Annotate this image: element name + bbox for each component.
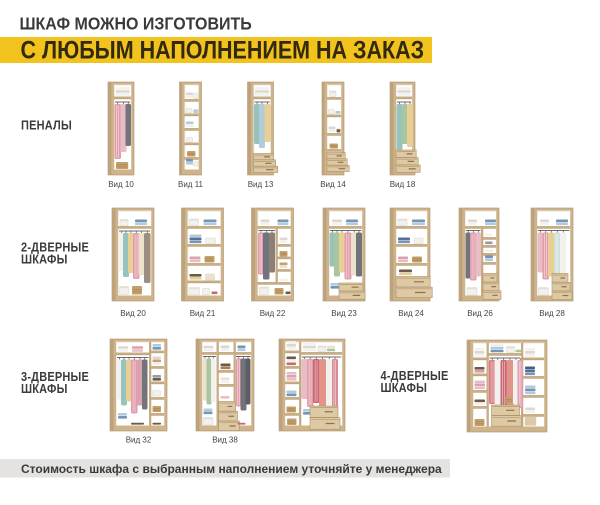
svg-text:Вид 11: Вид 11	[178, 180, 204, 189]
svg-text:Вид 22: Вид 22	[260, 309, 286, 318]
svg-text:ШКАФ МОЖНО ИЗГОТОВИТЬ: ШКАФ МОЖНО ИЗГОТОВИТЬ	[20, 14, 252, 34]
svg-text:Вид 18: Вид 18	[390, 180, 416, 189]
svg-text:Вид 26: Вид 26	[467, 309, 493, 318]
svg-text:Вид 13: Вид 13	[248, 180, 274, 189]
svg-text:Вид 23: Вид 23	[331, 309, 357, 318]
svg-text:Вид 32: Вид 32	[126, 436, 152, 445]
svg-text:Стоимость шкафа с выбранным на: Стоимость шкафа с выбранным наполнением …	[21, 462, 442, 476]
svg-text:Вид 20: Вид 20	[120, 309, 146, 318]
svg-text:Вид 14: Вид 14	[320, 180, 346, 189]
svg-text:Вид 24: Вид 24	[398, 309, 424, 318]
svg-text:Вид 38: Вид 38	[212, 436, 238, 445]
svg-text:Вид 10: Вид 10	[108, 180, 134, 189]
svg-text:Вид 21: Вид 21	[190, 309, 216, 318]
svg-text:С ЛЮБЫМ НАПОЛНЕНИЕМ НА ЗАКАЗ: С ЛЮБЫМ НАПОЛНЕНИЕМ НА ЗАКАЗ	[21, 36, 425, 64]
svg-text:ПЕНАЛЫ: ПЕНАЛЫ	[21, 118, 72, 133]
svg-text:Вид 28: Вид 28	[539, 309, 565, 318]
